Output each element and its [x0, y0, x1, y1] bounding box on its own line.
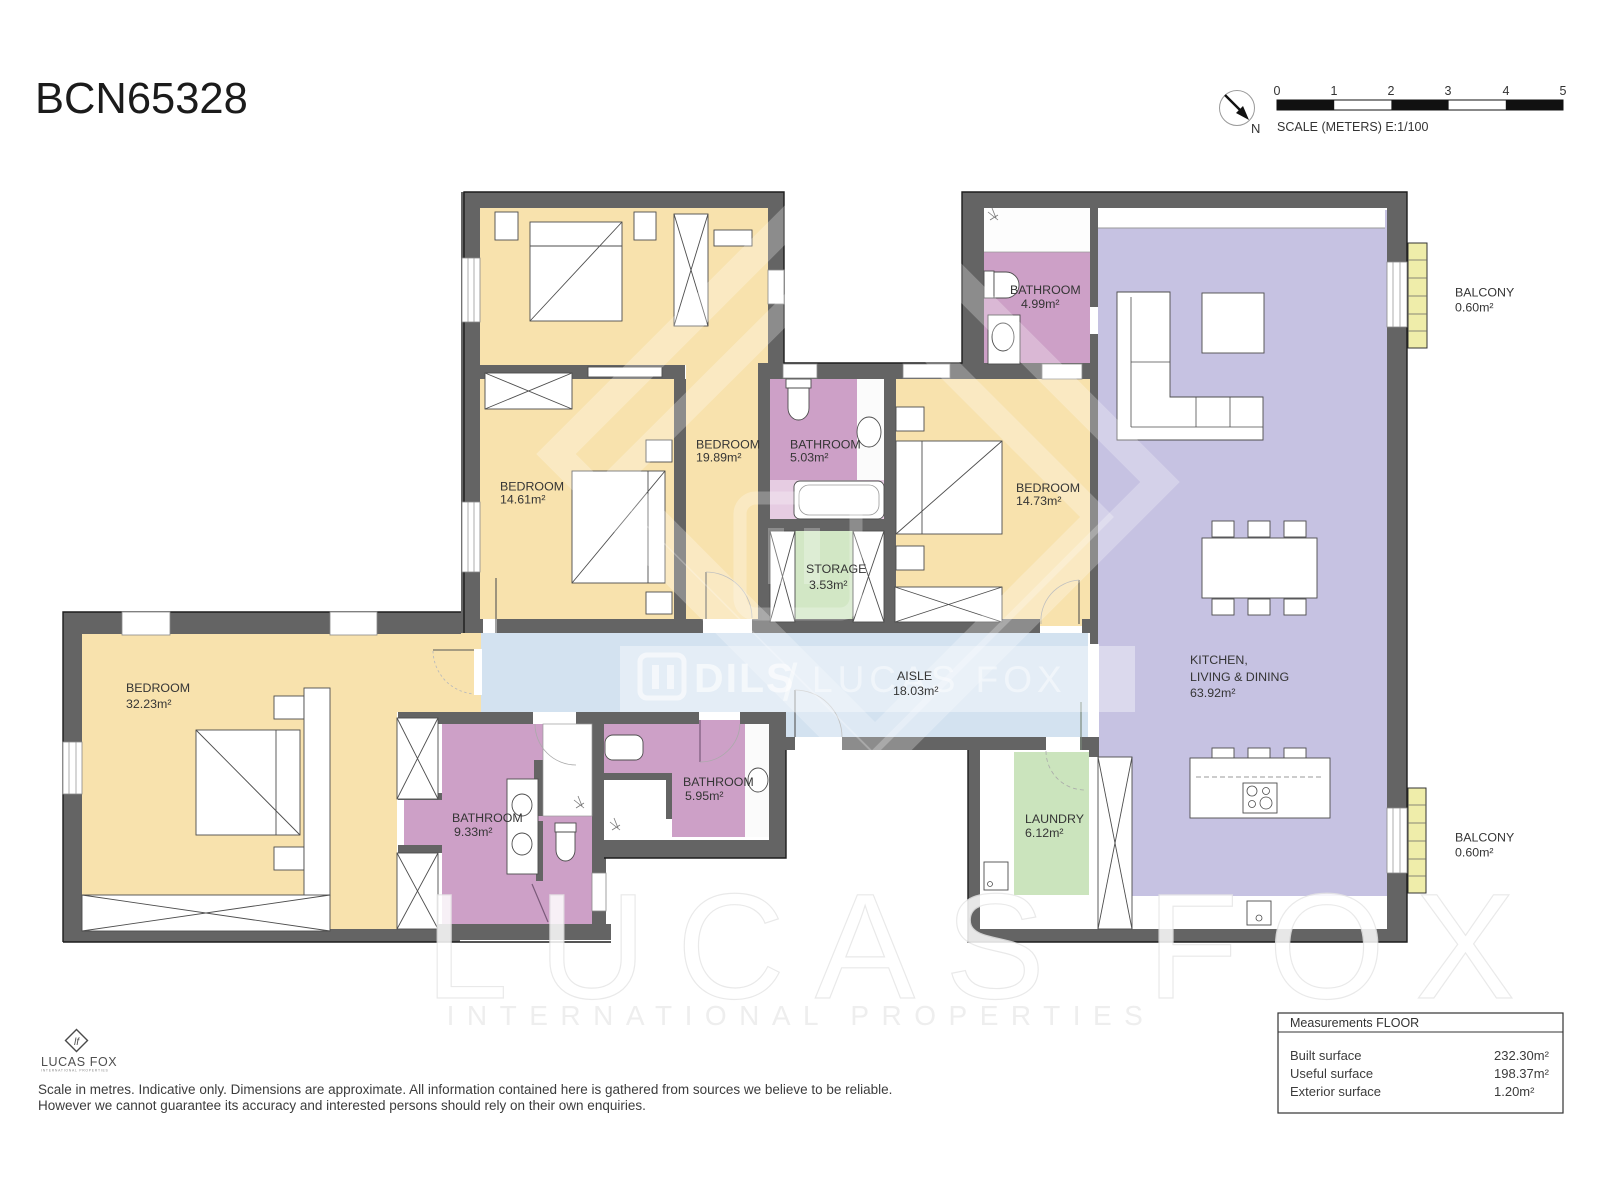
svg-text:63.92m²: 63.92m² [1190, 686, 1235, 700]
svg-text:6.12m²: 6.12m² [1025, 826, 1064, 840]
svg-text:4: 4 [1503, 84, 1510, 98]
svg-text:0: 0 [1274, 84, 1281, 98]
svg-text:4.99m²: 4.99m² [1021, 297, 1060, 311]
svg-text:BEDROOM: BEDROOM [126, 681, 190, 695]
svg-text:Scale in metres. Indicative on: Scale in metres. Indicative only. Dimens… [38, 1082, 892, 1097]
svg-text:INTERNATIONAL PROPERTIES: INTERNATIONAL PROPERTIES [447, 1000, 1156, 1031]
svg-text:BEDROOM: BEDROOM [1016, 481, 1080, 495]
svg-text:KITCHEN,: KITCHEN, [1190, 653, 1248, 667]
svg-text:However we cannot guarantee it: However we cannot guarantee its accuracy… [38, 1098, 646, 1113]
svg-text:BATHROOM: BATHROOM [452, 811, 523, 825]
svg-text:BALCONY: BALCONY [1455, 286, 1514, 300]
svg-text:19.89m²: 19.89m² [696, 451, 741, 465]
svg-text:14.61m²: 14.61m² [500, 493, 545, 507]
svg-text:3.53m²: 3.53m² [809, 578, 848, 592]
svg-text:Useful surface: Useful surface [1290, 1066, 1373, 1081]
svg-text:STORAGE: STORAGE [806, 562, 866, 576]
svg-text:LUCAS FOX: LUCAS FOX [41, 1055, 117, 1069]
svg-text:AISLE: AISLE [897, 669, 932, 683]
svg-text:SCALE (METERS) E:1/100: SCALE (METERS) E:1/100 [1277, 120, 1428, 134]
svg-text:LUCAS FOX: LUCAS FOX [812, 659, 1067, 700]
svg-text:5.03m²: 5.03m² [790, 451, 829, 465]
svg-text:5: 5 [1560, 84, 1567, 98]
svg-text:0.60m²: 0.60m² [1455, 301, 1494, 315]
svg-text:1.20m²: 1.20m² [1494, 1084, 1535, 1099]
svg-text:14.73m²: 14.73m² [1016, 494, 1061, 508]
svg-text:Measurements FLOOR: Measurements FLOOR [1290, 1016, 1419, 1030]
svg-text:/: / [783, 654, 798, 712]
svg-text:Built surface: Built surface [1290, 1048, 1362, 1063]
svg-text:198.37m²: 198.37m² [1494, 1066, 1550, 1081]
svg-text:2: 2 [1388, 84, 1395, 98]
svg-text:BALCONY: BALCONY [1455, 831, 1514, 845]
svg-text:BATHROOM: BATHROOM [1010, 283, 1081, 297]
svg-text:9.33m²: 9.33m² [454, 825, 493, 839]
svg-text:BEDROOM: BEDROOM [696, 438, 760, 452]
svg-text:LIVING & DINING: LIVING & DINING [1190, 670, 1289, 684]
svg-text:232.30m²: 232.30m² [1494, 1048, 1550, 1063]
svg-text:LAUNDRY: LAUNDRY [1025, 812, 1084, 826]
svg-text:5.95m²: 5.95m² [685, 789, 724, 803]
svg-text:BATHROOM: BATHROOM [683, 775, 754, 789]
svg-text:1: 1 [1331, 84, 1338, 98]
svg-text:Exterior surface: Exterior surface [1290, 1084, 1381, 1099]
svg-text:BATHROOM: BATHROOM [790, 438, 861, 452]
svg-text:BEDROOM: BEDROOM [500, 480, 564, 494]
svg-text:0.60m²: 0.60m² [1455, 846, 1494, 860]
svg-text:BCN65328: BCN65328 [35, 75, 248, 123]
svg-text:3: 3 [1445, 84, 1452, 98]
svg-text:32.23m²: 32.23m² [126, 697, 171, 711]
svg-text:INTERNATIONAL PROPERTIES: INTERNATIONAL PROPERTIES [41, 1069, 109, 1073]
svg-text:18.03m²: 18.03m² [893, 684, 938, 698]
svg-text:DILS: DILS [694, 655, 795, 701]
svg-text:N: N [1251, 121, 1260, 136]
